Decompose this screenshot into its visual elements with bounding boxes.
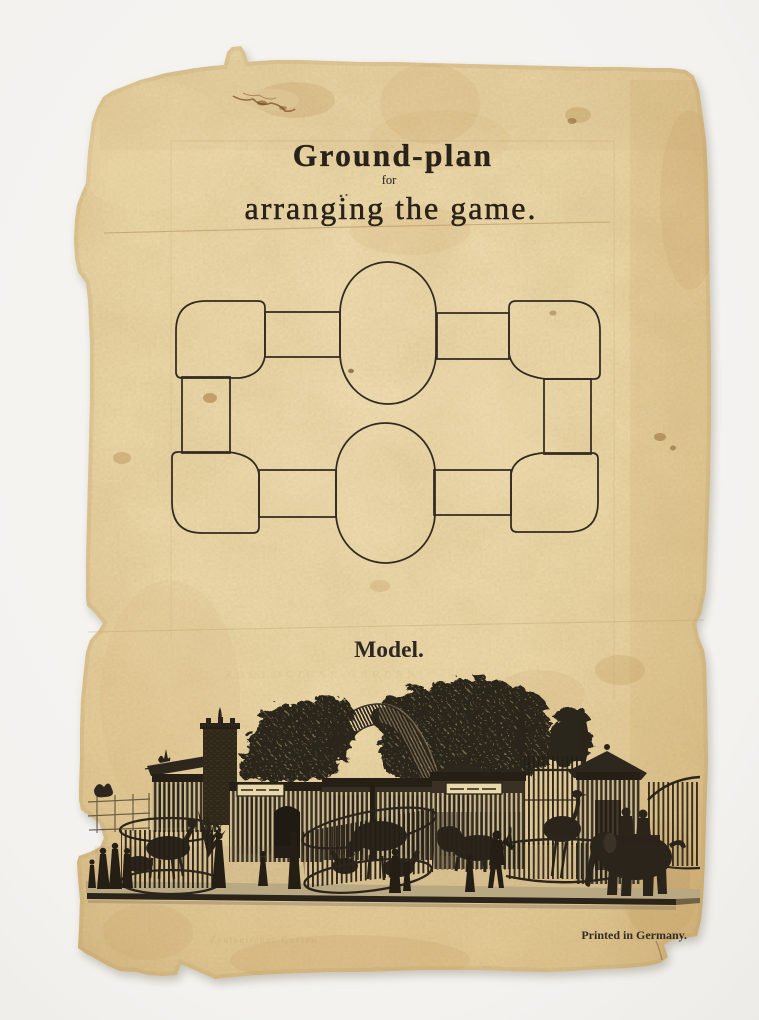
svg-text:Model.: Model.: [354, 637, 424, 663]
svg-text:for: for: [382, 173, 397, 187]
svg-text:Printed in Germany.: Printed in Germany.: [581, 928, 687, 942]
svg-text:Ground-plan: Ground-plan: [293, 138, 493, 173]
svg-text:ZOOLOGICAL GARDEN: ZOOLOGICAL GARDEN: [225, 669, 419, 681]
svg-text:Zoologischer Garten: Zoologischer Garten: [210, 935, 318, 945]
svg-text:arranging the game.: arranging the game.: [245, 190, 538, 226]
